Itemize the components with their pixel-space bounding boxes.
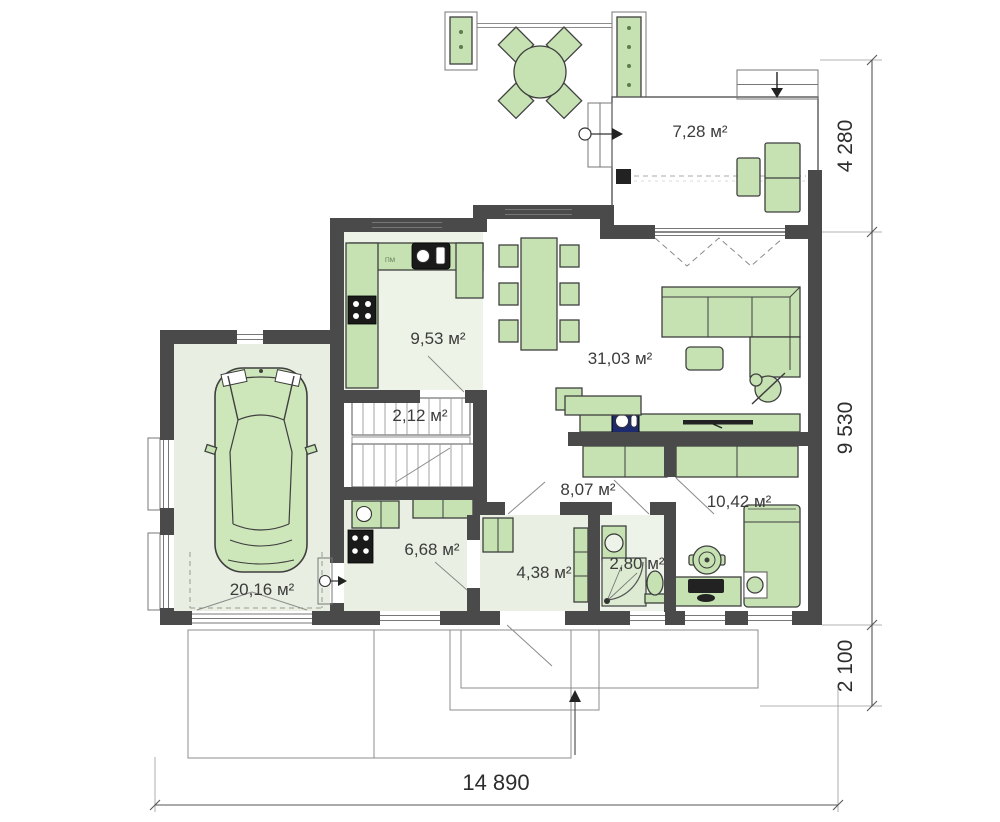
- window-sill: [148, 533, 160, 610]
- garage-door: [192, 614, 312, 623]
- dim-right-top: 4 280: [834, 120, 857, 173]
- car-icon: [205, 368, 317, 572]
- room-label-living: 31,03 м²: [588, 349, 653, 368]
- niche-shelves-icon: [574, 528, 588, 602]
- hall-furniture: [583, 446, 667, 477]
- entry-steps-top: [737, 70, 818, 99]
- porch-group: [374, 630, 758, 758]
- driveway-outline: [188, 630, 374, 758]
- dim-right-middle: 9 530: [834, 402, 857, 455]
- room-label-veranda: 7,28 м²: [672, 122, 727, 141]
- coffee-table-icon: [686, 347, 723, 370]
- planter-column-right: [612, 12, 646, 105]
- room-label-stairs: 2,12 м²: [392, 406, 447, 425]
- room-label-entry: 4,38 м²: [516, 563, 571, 582]
- room-label-bedroom: 10,42 м²: [707, 492, 772, 511]
- pot-plant-icon: [689, 546, 725, 574]
- bedroom-furniture: [673, 446, 800, 607]
- washing-machine-icon: [352, 501, 399, 528]
- front-door-leaf: [507, 625, 552, 666]
- room-label-garage: 20,16 м²: [230, 580, 295, 599]
- dishwasher-label: ПМ: [385, 257, 395, 264]
- french-door: [655, 229, 785, 267]
- bedroom-desk-icon: [673, 577, 741, 606]
- kitchen-counter-corner: [456, 243, 483, 298]
- room-label-bath: 2,80 м²: [609, 554, 664, 573]
- floor-plan-canvas: ПМ: [0, 0, 1000, 822]
- side-desk-icon: [556, 388, 641, 415]
- window-sill: [148, 438, 160, 510]
- stove-icon: [348, 296, 376, 324]
- planter-column-left: [445, 12, 477, 70]
- toilet-icon: [645, 571, 665, 603]
- entry-door-swing: [508, 482, 545, 514]
- dining-set-icon: [499, 238, 579, 350]
- bath-door-swing: [614, 480, 649, 514]
- room-label-kitchen: 9,53 м²: [410, 329, 465, 348]
- corner-sofa-icon: [662, 287, 800, 377]
- boiler-stove-icon: [348, 530, 373, 563]
- room-label-hall: 8,07 м²: [560, 480, 615, 499]
- garden-table-icon: [498, 27, 581, 118]
- dim-bottom: 14 890: [462, 770, 529, 795]
- stool-icon: [744, 572, 767, 598]
- post-icon: [616, 169, 631, 184]
- veranda-group: [579, 70, 818, 232]
- floor-plan-page: ПМ: [0, 0, 1000, 822]
- plant-icon: [750, 373, 785, 404]
- dining-table-icon: [521, 238, 557, 350]
- room-label-utility: 6,68 м²: [404, 540, 459, 559]
- entry-cabinet-icon: [483, 518, 513, 552]
- kitchen-sink-icon: [412, 243, 450, 269]
- dim-right-bottom: 2 100: [834, 640, 857, 693]
